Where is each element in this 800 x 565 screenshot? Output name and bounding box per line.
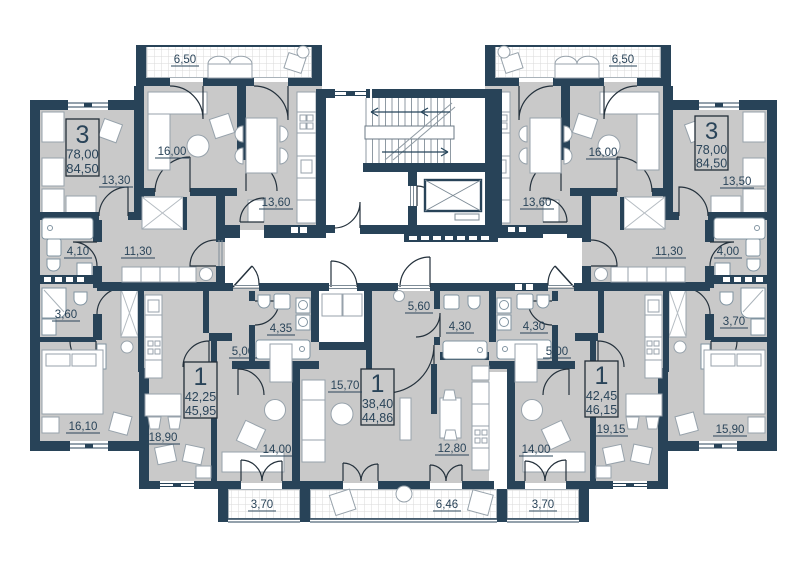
svg-text:42,45: 42,45 [586, 389, 617, 403]
svg-text:15,70: 15,70 [331, 380, 360, 392]
svg-text:5,00: 5,00 [232, 346, 254, 358]
svg-text:16,10: 16,10 [69, 421, 98, 433]
svg-text:3,60: 3,60 [55, 309, 77, 321]
svg-text:14,00: 14,00 [263, 444, 292, 456]
svg-text:6,46: 6,46 [436, 499, 458, 511]
svg-text:1: 1 [194, 363, 208, 391]
svg-text:3,70: 3,70 [251, 499, 273, 511]
svg-text:78,00: 78,00 [696, 143, 727, 157]
svg-text:5,60: 5,60 [408, 301, 430, 313]
svg-text:18,90: 18,90 [149, 432, 178, 444]
svg-text:4,30: 4,30 [523, 321, 545, 333]
svg-text:4,30: 4,30 [449, 321, 471, 333]
svg-text:3,70: 3,70 [723, 316, 745, 328]
svg-text:3,70: 3,70 [532, 499, 554, 511]
svg-text:12,80: 12,80 [438, 443, 467, 455]
svg-text:44,86: 44,86 [362, 411, 393, 425]
svg-text:6,50: 6,50 [612, 54, 634, 66]
svg-text:5,00: 5,00 [546, 346, 568, 358]
svg-text:13,30: 13,30 [102, 175, 131, 187]
svg-text:45,95: 45,95 [185, 404, 216, 418]
svg-text:16,00: 16,00 [158, 146, 187, 158]
svg-text:4,00: 4,00 [717, 246, 739, 258]
svg-text:13,50: 13,50 [723, 176, 752, 188]
svg-text:78,00: 78,00 [66, 147, 99, 162]
svg-text:13,60: 13,60 [262, 197, 291, 209]
svg-text:6,50: 6,50 [174, 54, 196, 66]
svg-text:14,00: 14,00 [522, 444, 551, 456]
svg-text:42,25: 42,25 [185, 390, 216, 404]
svg-text:1: 1 [595, 362, 609, 390]
svg-text:38,40: 38,40 [362, 397, 393, 411]
svg-text:11,30: 11,30 [124, 246, 152, 258]
svg-text:11,30: 11,30 [655, 246, 683, 258]
svg-text:15,90: 15,90 [716, 424, 745, 436]
svg-text:16,00: 16,00 [589, 147, 618, 159]
svg-text:4,35: 4,35 [270, 323, 292, 335]
svg-text:3: 3 [705, 118, 718, 145]
svg-text:13,60: 13,60 [523, 197, 552, 209]
svg-text:4,10: 4,10 [67, 246, 89, 258]
svg-text:46,15: 46,15 [586, 403, 617, 417]
svg-text:3: 3 [76, 121, 90, 149]
svg-text:84,50: 84,50 [696, 157, 727, 171]
svg-text:19,15: 19,15 [597, 424, 626, 436]
svg-text:1: 1 [371, 370, 385, 398]
svg-text:84,50: 84,50 [66, 161, 99, 176]
